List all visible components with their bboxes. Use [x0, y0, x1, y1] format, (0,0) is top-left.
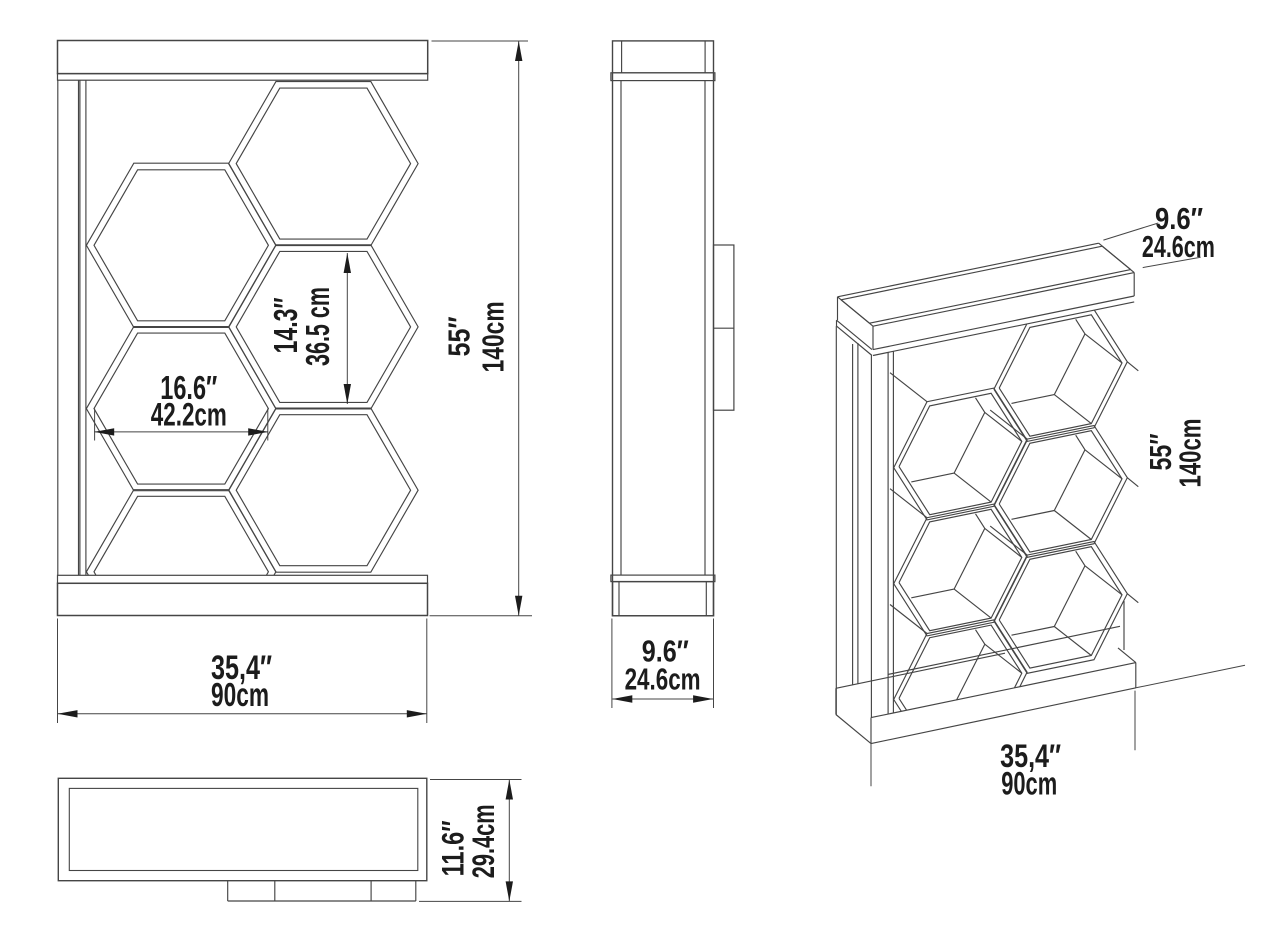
svg-text:90cm: 90cm	[1001, 765, 1057, 801]
svg-text:36.5 cm: 36.5 cm	[299, 287, 336, 366]
svg-text:140cm: 140cm	[475, 301, 510, 372]
svg-text:140cm: 140cm	[1174, 419, 1208, 488]
svg-text:55″: 55″	[441, 316, 476, 356]
svg-text:24.6cm: 24.6cm	[1142, 230, 1215, 264]
svg-text:29.4cm: 29.4cm	[465, 804, 501, 878]
svg-text:42.2cm: 42.2cm	[151, 396, 227, 432]
svg-text:24.6cm: 24.6cm	[625, 662, 701, 697]
svg-text:90cm: 90cm	[211, 677, 269, 714]
